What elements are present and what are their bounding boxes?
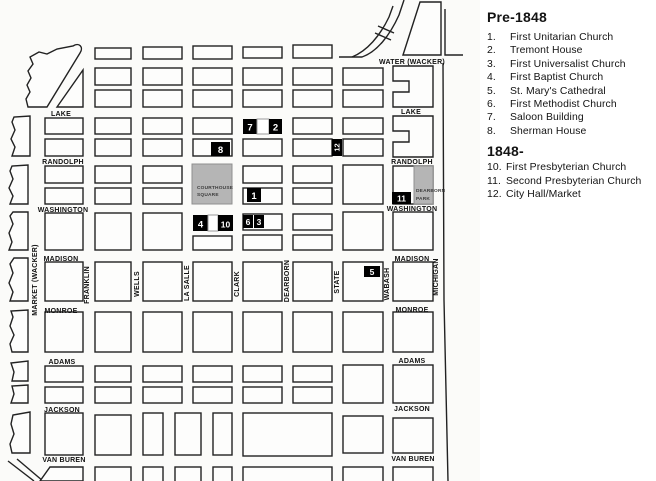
city-block xyxy=(293,387,332,403)
city-block xyxy=(95,467,131,481)
city-block xyxy=(143,188,182,204)
city-block xyxy=(45,413,83,455)
city-block xyxy=(143,139,182,156)
legend-item-number: 2. xyxy=(487,44,510,57)
legend-item-number: 7. xyxy=(487,111,510,124)
city-block-riverbank xyxy=(10,310,28,352)
city-block xyxy=(143,118,182,134)
legend-item-label: Saloon Building xyxy=(510,111,584,124)
street-label-jackson-west: JACKSON xyxy=(44,407,80,414)
city-block xyxy=(243,166,282,183)
marker-10-number: 10 xyxy=(221,220,231,230)
city-block xyxy=(143,90,182,107)
city-block xyxy=(243,90,282,107)
city-block xyxy=(343,312,383,352)
city-block xyxy=(243,413,332,456)
city-block xyxy=(45,118,83,134)
marker-11-number: 11 xyxy=(397,194,406,204)
city-block xyxy=(293,45,332,58)
city-block xyxy=(95,48,131,59)
city-block xyxy=(95,166,131,183)
city-block xyxy=(243,366,282,382)
street-label-franklin: FRANKLIN xyxy=(84,266,91,304)
city-block xyxy=(45,188,83,204)
legend-item-number: 10. xyxy=(487,161,506,174)
city-block xyxy=(95,387,131,403)
city-block xyxy=(293,90,332,107)
legend-item-number: 1. xyxy=(487,31,510,44)
street-label-washington-east: WASHINGTON xyxy=(387,206,438,213)
legend-item: 7. Saloon Building xyxy=(487,111,655,124)
legend-item-label: City Hall/Market xyxy=(506,188,581,201)
city-block xyxy=(193,387,232,403)
city-block xyxy=(193,236,232,250)
city-block xyxy=(293,235,332,250)
city-block xyxy=(393,365,433,403)
street-label-dearborn: DEARBORN xyxy=(284,260,291,302)
marker-6-number: 6 xyxy=(246,217,251,227)
legend-item-label: Tremont House xyxy=(510,44,583,57)
city-block-riverbank xyxy=(11,361,28,381)
street-label-lasalle: LA SALLE xyxy=(184,265,191,301)
legend-item-label: First Methodist Church xyxy=(510,98,617,111)
legend-item-number: 6. xyxy=(487,98,510,111)
city-block xyxy=(393,262,433,301)
city-block xyxy=(243,387,282,403)
street-label-clark: CLARK xyxy=(234,271,241,297)
street-label-madison-east: MADISON xyxy=(395,256,430,263)
city-block xyxy=(193,366,232,382)
courthouse-square-label-line1: COURTHOUSE xyxy=(197,185,234,191)
legend-item: 4. First Baptist Church xyxy=(487,71,655,84)
street-label-wabash: WABASH xyxy=(384,268,391,301)
legend-title-pre-1848: Pre-1848 xyxy=(487,9,655,25)
city-block xyxy=(193,118,232,134)
city-block xyxy=(243,262,282,301)
city-block xyxy=(193,90,232,107)
city-block xyxy=(243,47,282,58)
city-block xyxy=(143,213,182,250)
street-label-vanburen-west: VAN BUREN xyxy=(42,457,85,464)
city-block xyxy=(293,188,332,204)
legend-title-1848: 1848- xyxy=(487,143,655,159)
marker-7-number: 7 xyxy=(247,123,252,134)
city-block xyxy=(293,262,332,301)
street-label-water-wacker-east: WATER (WACKER) xyxy=(379,59,445,66)
city-block-riverbank xyxy=(11,116,30,156)
legend-item-label: St. Mary's Cathedral xyxy=(510,85,606,98)
legend-item-number: 5. xyxy=(487,85,510,98)
street-label-adams-west: ADAMS xyxy=(49,359,76,366)
city-block xyxy=(343,68,383,85)
street-label-washington-west: WASHINGTON xyxy=(38,207,89,214)
legend-item: 6. First Methodist Church xyxy=(487,98,655,111)
legend-item-label: Sherman House xyxy=(510,125,586,138)
city-block xyxy=(45,213,83,250)
city-block xyxy=(393,212,433,250)
city-block xyxy=(95,118,131,134)
street-label-monroe-east: MONROE xyxy=(396,307,429,314)
city-block xyxy=(293,139,332,156)
legend-item-label: Second Presbyterian Church xyxy=(506,175,641,188)
marker-5-number: 5 xyxy=(370,267,375,277)
legend-item-number: 8. xyxy=(487,125,510,138)
city-block xyxy=(193,312,232,352)
street-label-adams-east: ADAMS xyxy=(399,358,426,365)
marker-8-number: 8 xyxy=(218,145,223,156)
street-label-randolph-east: RANDOLPH xyxy=(391,159,433,166)
city-block xyxy=(193,262,232,301)
city-block xyxy=(393,418,433,453)
city-block xyxy=(45,366,83,382)
legend-item: 1. First Unitarian Church xyxy=(487,31,655,44)
city-block xyxy=(343,90,383,107)
city-block xyxy=(95,68,131,85)
city-block xyxy=(293,214,332,230)
city-block-riverbank xyxy=(10,412,30,453)
city-block xyxy=(243,312,282,352)
city-block xyxy=(95,366,131,382)
city-block xyxy=(293,118,332,134)
city-block xyxy=(95,139,131,156)
city-block xyxy=(213,413,232,455)
city-block xyxy=(343,165,383,204)
city-block-riverbank xyxy=(9,165,28,204)
city-block xyxy=(193,46,232,59)
street-label-vanburen-east: VAN BUREN xyxy=(391,456,434,463)
street-label-monroe-west: MONROE xyxy=(45,308,78,315)
street-label-michigan: MICHIGAN xyxy=(433,258,440,295)
marker-3-number: 3 xyxy=(257,217,262,227)
city-block xyxy=(243,68,282,85)
dearborn-park-label-line2: PARK xyxy=(416,196,430,202)
city-block xyxy=(45,387,83,403)
city-block xyxy=(143,366,182,382)
city-block xyxy=(343,416,383,453)
dearborn-park-label-line1: DEARBORN xyxy=(416,188,446,194)
map-svg: COURTHOUSE SQUARE DEARBORN PARK 7 2 8 12… xyxy=(0,0,480,481)
city-block xyxy=(95,415,131,455)
legend-item: 8. Sherman House xyxy=(487,125,655,138)
city-block xyxy=(143,387,182,403)
city-block xyxy=(343,139,383,156)
city-block xyxy=(45,139,83,156)
legend-item-label: First Universalist Church xyxy=(510,58,626,71)
city-block xyxy=(45,166,83,183)
marker-2-number: 2 xyxy=(273,123,278,134)
legend-item: 10. First Presbyterian Church xyxy=(487,161,655,174)
legend-item-label: First Unitarian Church xyxy=(510,31,613,44)
street-label-lake-west: LAKE xyxy=(51,111,71,118)
city-block xyxy=(243,235,282,250)
city-block xyxy=(95,188,131,204)
city-block xyxy=(143,262,182,301)
city-block xyxy=(143,312,182,352)
legend-item: 3. First Universalist Church xyxy=(487,58,655,71)
city-block xyxy=(343,467,383,481)
city-block xyxy=(95,312,131,352)
marker-1-number: 1 xyxy=(251,191,257,202)
legend-item-number: 4. xyxy=(487,71,510,84)
legend-item-number: 12. xyxy=(487,188,506,201)
city-block-riverbank xyxy=(9,258,28,301)
city-block xyxy=(343,118,383,134)
city-block xyxy=(95,262,131,301)
street-label-state: STATE xyxy=(334,270,341,293)
city-block xyxy=(393,312,433,352)
city-block xyxy=(343,365,383,403)
historic-chicago-map-page: COURTHOUSE SQUARE DEARBORN PARK 7 2 8 12… xyxy=(0,0,656,481)
city-block xyxy=(393,467,433,481)
street-label-jackson-east: JACKSON xyxy=(394,406,430,413)
city-block xyxy=(293,366,332,382)
city-block xyxy=(143,68,182,85)
city-block xyxy=(143,166,182,183)
marker-blank-square xyxy=(257,119,269,134)
city-block xyxy=(293,166,332,183)
city-block xyxy=(143,47,182,59)
marker-4-number: 4 xyxy=(198,220,204,231)
city-block xyxy=(193,68,232,85)
legend-item-number: 3. xyxy=(487,58,510,71)
city-block xyxy=(175,467,201,481)
city-block xyxy=(343,212,383,250)
city-block-riverbank xyxy=(11,385,28,403)
legend-item: 12. City Hall/Market xyxy=(487,188,655,201)
city-block xyxy=(213,467,232,481)
legend-item-label: First Presbyterian Church xyxy=(506,161,626,174)
city-block xyxy=(293,68,332,85)
street-label-randolph-west: RANDOLPH xyxy=(42,159,84,166)
street-label-lake-east: LAKE xyxy=(401,109,421,116)
city-block xyxy=(95,213,131,250)
street-label-madison-west: MADISON xyxy=(44,256,79,263)
city-block xyxy=(175,413,201,455)
legend-panel: Pre-1848 1. First Unitarian Church 2. Tr… xyxy=(487,6,655,201)
street-label-wells: WELLS xyxy=(134,271,141,297)
legend-item-label: First Baptist Church xyxy=(510,71,603,84)
courthouse-square-label-line2: SQUARE xyxy=(197,192,219,198)
street-label-market-wacker: MARKET (WACKER) xyxy=(32,244,39,315)
city-block xyxy=(143,413,163,455)
legend-item: 5. St. Mary's Cathedral xyxy=(487,85,655,98)
legend-item: 11. Second Presbyterian Church xyxy=(487,175,655,188)
courthouse-square-block xyxy=(192,164,232,204)
city-block xyxy=(243,467,332,481)
city-block xyxy=(45,312,83,352)
city-block xyxy=(243,139,282,156)
legend-item: 2. Tremont House xyxy=(487,44,655,57)
city-block xyxy=(293,312,332,352)
city-block xyxy=(143,467,163,481)
legend-item-number: 11. xyxy=(487,175,506,188)
marker-blank-square xyxy=(208,215,218,231)
city-block-riverbank xyxy=(9,212,28,250)
city-block xyxy=(95,90,131,107)
city-block xyxy=(45,262,83,301)
marker-12-number: 12 xyxy=(333,143,342,151)
